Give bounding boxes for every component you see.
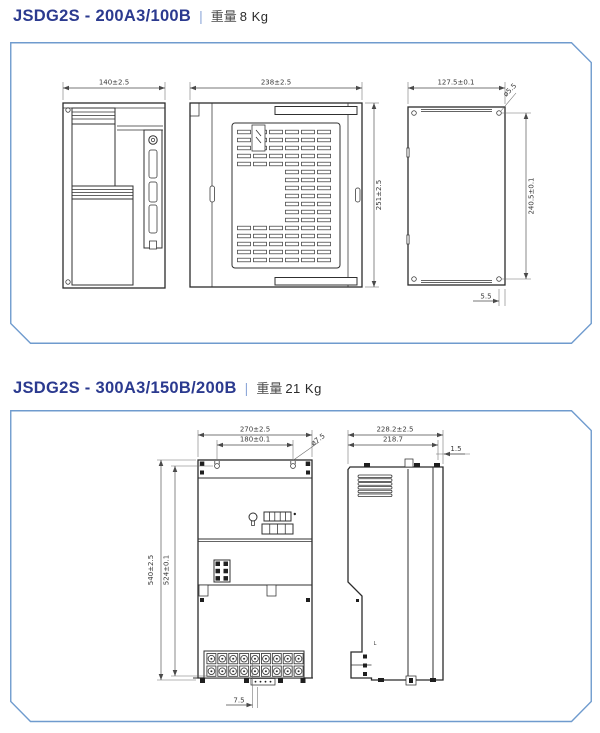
heatsink-slot [358, 494, 392, 497]
lever-connector [252, 125, 265, 151]
dim-front-width-1: 140±2.5 [99, 79, 129, 87]
top-view-1: 238±2.5 251±2.5 [190, 79, 383, 288]
terminal-screw [363, 664, 367, 668]
dim-hole-span-2: 180±0.1 [240, 436, 270, 444]
cover-lower [72, 199, 133, 285]
mounting-hole [497, 277, 502, 282]
dim-side-inner-depth-2: 218.7 [383, 436, 403, 444]
foot [278, 678, 283, 683]
vent-strip [72, 108, 115, 124]
top-clip [414, 463, 420, 467]
terminal-screw [363, 672, 367, 676]
title-separator-2: | [245, 380, 249, 396]
bottom-rail [275, 278, 357, 286]
top-rail [275, 107, 357, 115]
dim-plate-edge-1: 5.5 [480, 293, 491, 301]
label-strip [251, 679, 275, 686]
cover-upper [72, 124, 115, 186]
dim-plate-width-1: 127.5±0.1 [437, 79, 474, 87]
switch [150, 241, 157, 249]
step-notch [267, 585, 276, 596]
weight-label-1: 重量 [211, 6, 237, 25]
top-clip [434, 463, 440, 467]
datasheet-page: JSDG2S - 200A3/100B | 重量 8 Kg [0, 0, 600, 733]
connector-slot [149, 150, 157, 178]
heatsink-slot [358, 490, 392, 493]
dim-side-depth-2: 228.2±2.5 [376, 426, 413, 434]
dim-front-height-2: 540±2.5 [147, 555, 155, 585]
dim-front-width-2: 270±2.5 [240, 426, 270, 434]
terminal-screws [206, 653, 304, 678]
vent-grid [236, 224, 284, 264]
mounting-slot-hole [215, 464, 220, 469]
model-number-1: JSDG2S - 200A3/100B [13, 7, 191, 26]
led-display [264, 512, 291, 521]
side-mark-label: L [374, 641, 377, 647]
heatsink-slot [358, 483, 392, 486]
step-notch [199, 585, 208, 596]
corner-screw [200, 462, 205, 467]
edge-notch [407, 235, 409, 244]
model-number-2: JSDG2S - 300A3/150B/200B [13, 379, 237, 398]
side-slot [356, 188, 361, 202]
mounting-hole [412, 111, 417, 116]
weight-value-1: 8 Kg [240, 9, 269, 24]
title-separator-1: | [199, 8, 203, 24]
foot [301, 678, 306, 683]
dim-top-height-1: 251±2.5 [375, 180, 383, 210]
weight-value-2: 21 Kg [285, 381, 321, 396]
heatsink-slot [358, 486, 392, 489]
indicator-dot [294, 513, 296, 515]
side-slot [210, 186, 215, 202]
heatsink-slot [358, 479, 392, 482]
dim-hole-height-2: 524±0.1 [163, 555, 171, 585]
vent-grid [284, 128, 332, 264]
dim-bottom-edge-2: 7.5 [233, 697, 244, 705]
weight-label-2: 重量 [256, 378, 282, 397]
front-view-1: 140±2.5 [63, 79, 165, 289]
foot [200, 678, 205, 683]
foot [244, 678, 249, 683]
dim-side-lip-2: 1.5 [450, 445, 461, 453]
top-clip [364, 463, 370, 467]
heatsink-slot [358, 475, 392, 478]
foot [378, 678, 384, 682]
corner-screw [306, 462, 311, 467]
terminal-screw [363, 655, 367, 659]
foot [430, 678, 436, 682]
section-title-1: JSDG2S - 200A3/100B | 重量 8 Kg [13, 6, 269, 26]
mounting-hole [412, 277, 417, 282]
dim-top-width-1: 238±2.5 [261, 79, 291, 87]
connector-slot [149, 205, 157, 233]
edge-notch [407, 148, 409, 157]
section-title-2: JSDG2S - 300A3/150B/200B | 重量 21 Kg [13, 378, 322, 398]
dimension-drawing-panel-2: 270±2.5 180±0.1 ø7.5 540±2.5 524±0.1 7.5 [10, 410, 592, 723]
hanger-hook [405, 459, 413, 467]
dim-plate-height-1: 240.5±0.1 [528, 177, 536, 214]
connector-slot [149, 182, 157, 202]
dimension-drawing-panel-1: 140±2.5 238±2.5 25 [10, 42, 592, 344]
mounting-slot-hole [291, 464, 296, 469]
